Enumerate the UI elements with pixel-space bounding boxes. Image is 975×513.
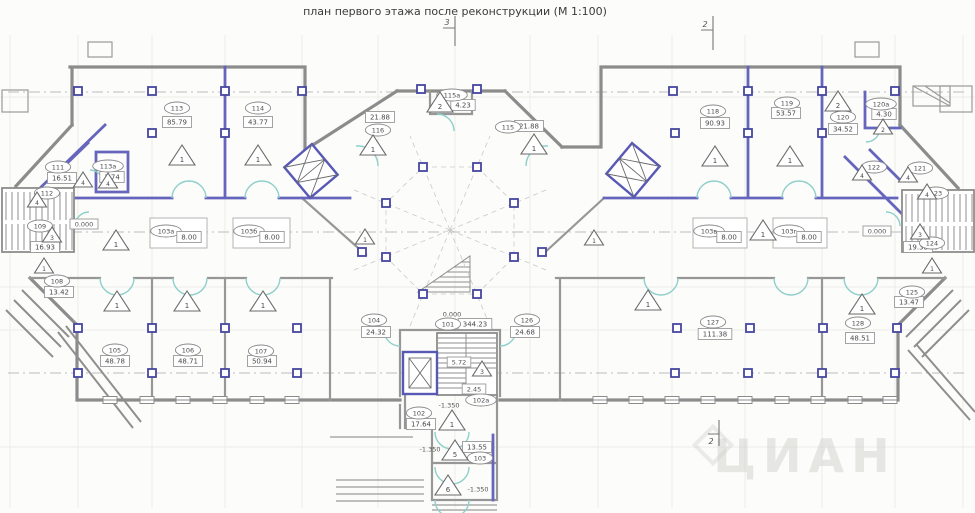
room-number: 122	[868, 163, 880, 171]
floor-plan-page: ЦИАН	[0, 0, 975, 513]
room-number: 103в	[701, 227, 717, 235]
elevator-main	[403, 352, 437, 394]
room-area-value: 48.51	[850, 335, 870, 343]
finish-type-number: 1	[860, 305, 864, 313]
column-square	[148, 369, 156, 377]
room-area-value: 24.32	[366, 329, 386, 337]
column-square	[673, 324, 681, 332]
room-area-value: 50.94	[252, 358, 273, 366]
room-number: 107	[255, 347, 267, 355]
finish-type-number: 1	[180, 156, 184, 164]
finish-type-number: 4	[35, 200, 39, 207]
room-area-value: 53.57	[776, 110, 796, 118]
finish-type-number: 1	[788, 157, 792, 165]
dimension-value: 2.45	[467, 386, 481, 394]
room-area-value: 34.52	[833, 126, 853, 134]
finish-type-number: 1	[42, 266, 46, 273]
room-number: 116	[372, 126, 384, 134]
room-number: 113а	[100, 162, 116, 170]
column-square	[382, 253, 390, 261]
section-marker-label: 2	[702, 20, 707, 29]
finish-type-number: 3	[918, 232, 922, 239]
level-mark: 0.000	[75, 221, 94, 229]
column-square	[818, 87, 826, 95]
column-square	[148, 129, 156, 137]
finish-type-number: 1	[185, 302, 189, 310]
column-square	[818, 369, 826, 377]
room-number: 105	[109, 346, 121, 354]
column-square	[671, 129, 679, 137]
column-square	[893, 324, 901, 332]
finish-type-number: 3	[480, 369, 484, 376]
column-square	[148, 87, 156, 95]
finish-type-number: 6	[446, 486, 451, 494]
room-number: 113	[171, 104, 183, 112]
column-square	[74, 369, 82, 377]
stairs	[2, 188, 975, 428]
level-mark: -1.350	[420, 446, 441, 454]
room-area-value: 111.38	[703, 331, 728, 339]
room-area-value: 13.47	[899, 299, 919, 307]
room-area-value: 16.93	[35, 244, 55, 252]
room-area-value: 344.23	[463, 321, 488, 329]
room-area-value: 43.77	[248, 119, 268, 127]
column-square	[419, 163, 427, 171]
finish-type-number: 1	[532, 145, 536, 153]
column-square	[419, 290, 427, 298]
level-mark: 0.000	[443, 311, 462, 319]
room-area-value: 24.68	[515, 329, 535, 337]
room-area-value: 8.00	[181, 234, 197, 242]
finish-type-number: 4	[860, 173, 864, 180]
finish-type-number: 1	[761, 231, 765, 239]
room-area-value: 8.00	[801, 234, 817, 242]
room-number: 115	[502, 123, 514, 131]
room-area-value: 8.00	[264, 234, 280, 242]
column-square	[510, 199, 518, 207]
finish-type-number: 1	[261, 302, 265, 310]
finish-type-number: 3	[50, 235, 54, 242]
room-number: 126	[521, 316, 533, 324]
column-square	[74, 324, 82, 332]
column-square	[891, 369, 899, 377]
dimension-value: 5.72	[452, 359, 466, 367]
column-square	[669, 87, 677, 95]
finish-type-number: 1	[114, 241, 118, 249]
room-area-value: 85.79	[167, 119, 187, 127]
room-area-value: 13.42	[49, 289, 69, 297]
column-square	[744, 369, 752, 377]
column-square	[891, 87, 899, 95]
room-number: 111	[52, 163, 64, 171]
room-area-value: 21.88	[519, 123, 539, 131]
room-number: 125	[906, 288, 918, 296]
finish-type-number: 2	[881, 127, 885, 134]
section-marker-label: 2	[708, 437, 713, 446]
elevator-left	[284, 144, 337, 198]
room-number: 102а	[473, 396, 489, 404]
finish-type-number: 1	[713, 157, 717, 165]
column-square	[818, 129, 826, 137]
finish-type-number: 4	[81, 180, 85, 187]
column-square	[358, 248, 366, 256]
room-area-value: 8.00	[721, 234, 737, 242]
room-number: 109	[34, 222, 46, 230]
room-number: 103а	[158, 227, 174, 235]
room-number: 115а	[444, 91, 460, 99]
column-square	[671, 369, 679, 377]
room-number: 120	[837, 113, 849, 121]
column-square	[74, 87, 82, 95]
room-number: 124	[926, 239, 938, 247]
room-area-value: 17.64	[411, 421, 432, 429]
room-number: 101	[442, 320, 454, 328]
section-marker-2-top: 2	[701, 16, 713, 50]
room-number: 121	[914, 164, 926, 172]
room-number: 106	[182, 346, 194, 354]
column-square	[148, 324, 156, 332]
finish-type-number: 4	[906, 175, 910, 182]
room-number: 103	[474, 454, 486, 462]
finish-type-number: 4	[925, 192, 929, 199]
finish-type-number: 1	[646, 301, 650, 309]
finish-type-number: 1	[371, 146, 375, 154]
room-area-value: 16.51	[52, 175, 72, 183]
finish-type-number: 1	[115, 302, 119, 310]
room-area-value: 90.93	[705, 120, 725, 128]
room-number: 104	[368, 316, 380, 324]
room-area-value: 13.55	[467, 444, 487, 452]
section-marker-3-top: 3	[443, 16, 455, 46]
section-marker-label: 3	[444, 18, 449, 27]
room-number: 112	[41, 189, 53, 197]
room-number: 120а	[873, 100, 889, 108]
finish-type-number: 1	[930, 266, 934, 273]
room-area-value: 48.78	[105, 358, 125, 366]
room-area-value: 48.71	[178, 358, 198, 366]
finish-type-number: 2	[438, 103, 442, 111]
column-square	[744, 129, 752, 137]
room-area-value: 4.23	[455, 102, 471, 110]
column-square	[417, 85, 425, 93]
room-number: 103г	[781, 227, 797, 235]
atrium-octagon	[354, 136, 546, 326]
watermark-text: ЦИАН	[713, 429, 896, 483]
column-square	[221, 369, 229, 377]
finish-type-number: 2	[836, 102, 840, 110]
column-square	[298, 87, 306, 95]
level-mark: -1.350	[468, 486, 489, 494]
finish-type-number: 4	[106, 181, 110, 188]
column-square	[538, 248, 546, 256]
finish-type-number: 1	[256, 156, 260, 164]
level-mark: -1.350	[439, 402, 460, 410]
elevator-right	[606, 143, 659, 197]
column-square	[221, 324, 229, 332]
finish-type-number: 5	[453, 451, 457, 459]
column-square	[221, 129, 229, 137]
column-square	[510, 253, 518, 261]
column-square	[819, 324, 827, 332]
column-square	[746, 324, 754, 332]
room-number: 127	[707, 318, 719, 326]
level-mark: 0.000	[868, 228, 887, 236]
column-square	[473, 85, 481, 93]
room-number: 119	[781, 99, 793, 107]
floor-plan-canvas: ЦИАН	[0, 0, 975, 513]
room-number: 114	[252, 104, 264, 112]
finish-type-number: 1	[363, 237, 367, 244]
room-number: 118	[707, 107, 719, 115]
column-square	[293, 324, 301, 332]
finish-type-number: 1	[450, 421, 454, 429]
room-number: 128	[852, 319, 864, 327]
column-square	[293, 369, 301, 377]
room-area-value: 4.30	[876, 111, 892, 119]
column-square	[382, 199, 390, 207]
room-number: 108	[51, 277, 63, 285]
column-square	[473, 163, 481, 171]
column-square	[473, 290, 481, 298]
room-area-value: 21.88	[370, 114, 390, 122]
column-square	[221, 87, 229, 95]
column-square	[744, 87, 752, 95]
room-number: 102	[413, 409, 425, 417]
room-number: 103б	[241, 227, 257, 235]
finish-type-number: 1	[592, 238, 596, 245]
